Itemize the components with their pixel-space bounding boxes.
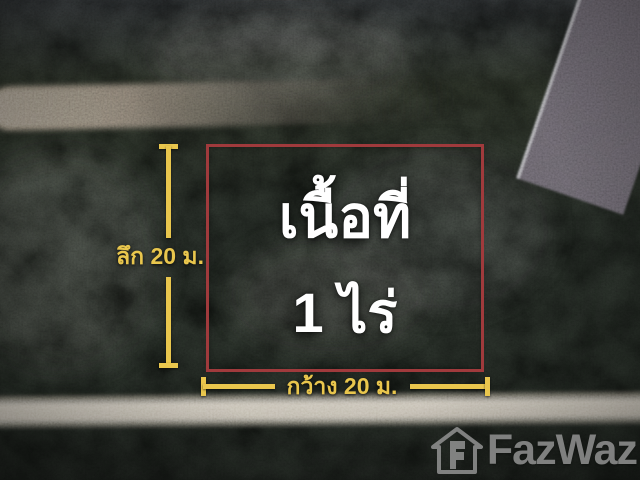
canopy-light-patch	[150, 10, 410, 100]
depth-dimension-upper-segment	[166, 146, 171, 238]
area-label: เนื้อที่ 1 ไร่	[206, 144, 484, 372]
depth-dimension-bottom-cap	[159, 363, 178, 368]
canopy-light-patch	[330, 150, 550, 310]
canopy-light-patch	[230, 240, 430, 350]
land-plot-listing-image: เนื้อที่ 1 ไร่ ลึก 20 ม. กว้าง 20 ม. Faz…	[0, 0, 640, 480]
width-dimension-left-cap	[201, 377, 206, 396]
width-dimension-right-segment	[410, 384, 488, 389]
depth-dimension-label: ลึก 20 ม.	[116, 239, 204, 275]
annotation-overlay: เนื้อที่ 1 ไร่ ลึก 20 ม. กว้าง 20 ม.	[0, 0, 640, 480]
paved-road-diagonal	[516, 0, 640, 215]
area-label-line2: 1 ไร่	[293, 285, 398, 341]
plot-boundary-rectangle	[206, 144, 484, 372]
dirt-road-bottom	[0, 391, 640, 430]
satellite-base	[0, 0, 640, 480]
dirt-road-top	[0, 77, 458, 131]
depth-dimension-top-cap	[159, 144, 178, 149]
fazwaz-logo-text: FazWaz	[487, 429, 637, 472]
vignette	[0, 0, 640, 480]
house-f-icon	[431, 426, 483, 474]
film-grain	[0, 0, 640, 480]
fazwaz-watermark: FazWaz	[431, 426, 637, 474]
vegetation-texture	[0, 0, 640, 480]
roadside-scrub-patch	[0, 150, 160, 370]
depth-dimension-lower-segment	[166, 277, 171, 366]
width-dimension-right-cap	[485, 377, 490, 396]
area-label-line1: เนื้อที่	[279, 189, 412, 247]
width-dimension-left-segment	[203, 384, 275, 389]
width-dimension-label: กว้าง 20 ม.	[287, 369, 398, 405]
